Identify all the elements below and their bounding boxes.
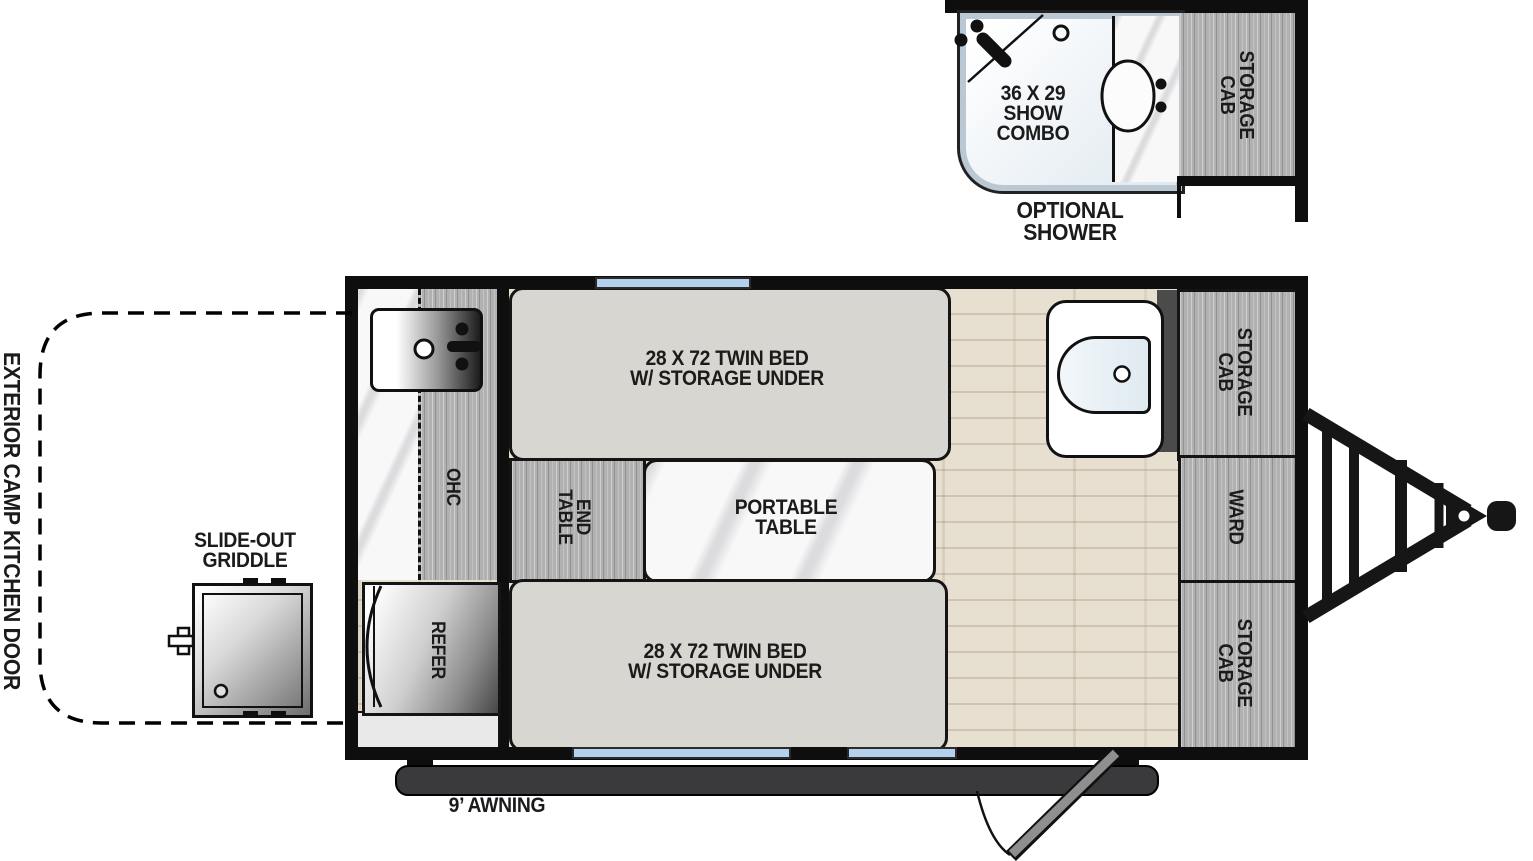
bed-bottom-label: 28 X 72 TWIN BED W/ STORAGE UNDER	[628, 642, 822, 682]
wall-left	[345, 276, 358, 760]
griddle-tab	[243, 578, 258, 584]
entry-door-swing-arc	[977, 791, 1010, 855]
end-table-label: END TABLE	[555, 489, 591, 545]
tongue-rail-top	[1306, 414, 1468, 511]
shower-sink-counter	[1112, 16, 1179, 182]
storage-cab-top-label: STORAGE CAB	[1215, 328, 1253, 417]
bed-top-label: 28 X 72 TWIN BED W/ STORAGE UNDER	[630, 349, 824, 389]
griddle-tab	[271, 711, 286, 717]
slide-out-griddle	[192, 583, 313, 718]
inset-wall-stub	[1177, 176, 1181, 218]
wall-top	[345, 276, 1308, 289]
hitch-coupler	[1487, 501, 1516, 531]
ohc-label: OHC	[443, 468, 461, 506]
awning-bar	[395, 765, 1159, 796]
entry-step	[350, 711, 500, 750]
storage-cab-bottom-label: STORAGE CAB	[1215, 619, 1253, 708]
wall-right	[1295, 276, 1308, 760]
ward-label: WARD	[1226, 489, 1245, 544]
door-window	[847, 747, 957, 759]
kitchen-sink	[370, 308, 483, 392]
griddle-inner-frame	[202, 593, 303, 708]
wall-bottom	[345, 747, 1308, 760]
awning-label: 9’ AWNING	[449, 796, 546, 816]
inset-wall-right	[1295, 0, 1308, 222]
portable-table-label: PORTABLE TABLE	[735, 498, 838, 538]
inset-storage-cab-label: STORAGE CAB	[1217, 51, 1255, 140]
window-bottom	[572, 747, 791, 759]
coupler-bolt	[1457, 509, 1472, 524]
tongue-tip	[1446, 492, 1487, 540]
optional-shower-caption: OPTIONAL SHOWER	[1016, 200, 1123, 244]
slide-out-griddle-label: SLIDE-OUT GRIDDLE	[194, 531, 296, 571]
griddle-handle	[178, 628, 189, 654]
refer-label: REFER	[428, 621, 446, 679]
toilet-bowl	[1057, 336, 1151, 414]
floorplan-canvas: 28 X 72 TWIN BED W/ STORAGE UNDER 28 X 7…	[0, 0, 1533, 861]
window-top	[595, 277, 751, 289]
show-combo-label: 36 X 29 SHOW COMBO	[997, 84, 1070, 144]
griddle-tab	[271, 578, 286, 584]
tongue-rail-bottom	[1306, 520, 1468, 617]
griddle-handle	[169, 636, 193, 646]
inset-wall-under-cab	[1180, 176, 1295, 186]
griddle-tab	[243, 711, 258, 717]
exterior-camp-kitchen-door-label: EXTERIOR CAMP KITCHEN DOOR	[0, 352, 22, 690]
